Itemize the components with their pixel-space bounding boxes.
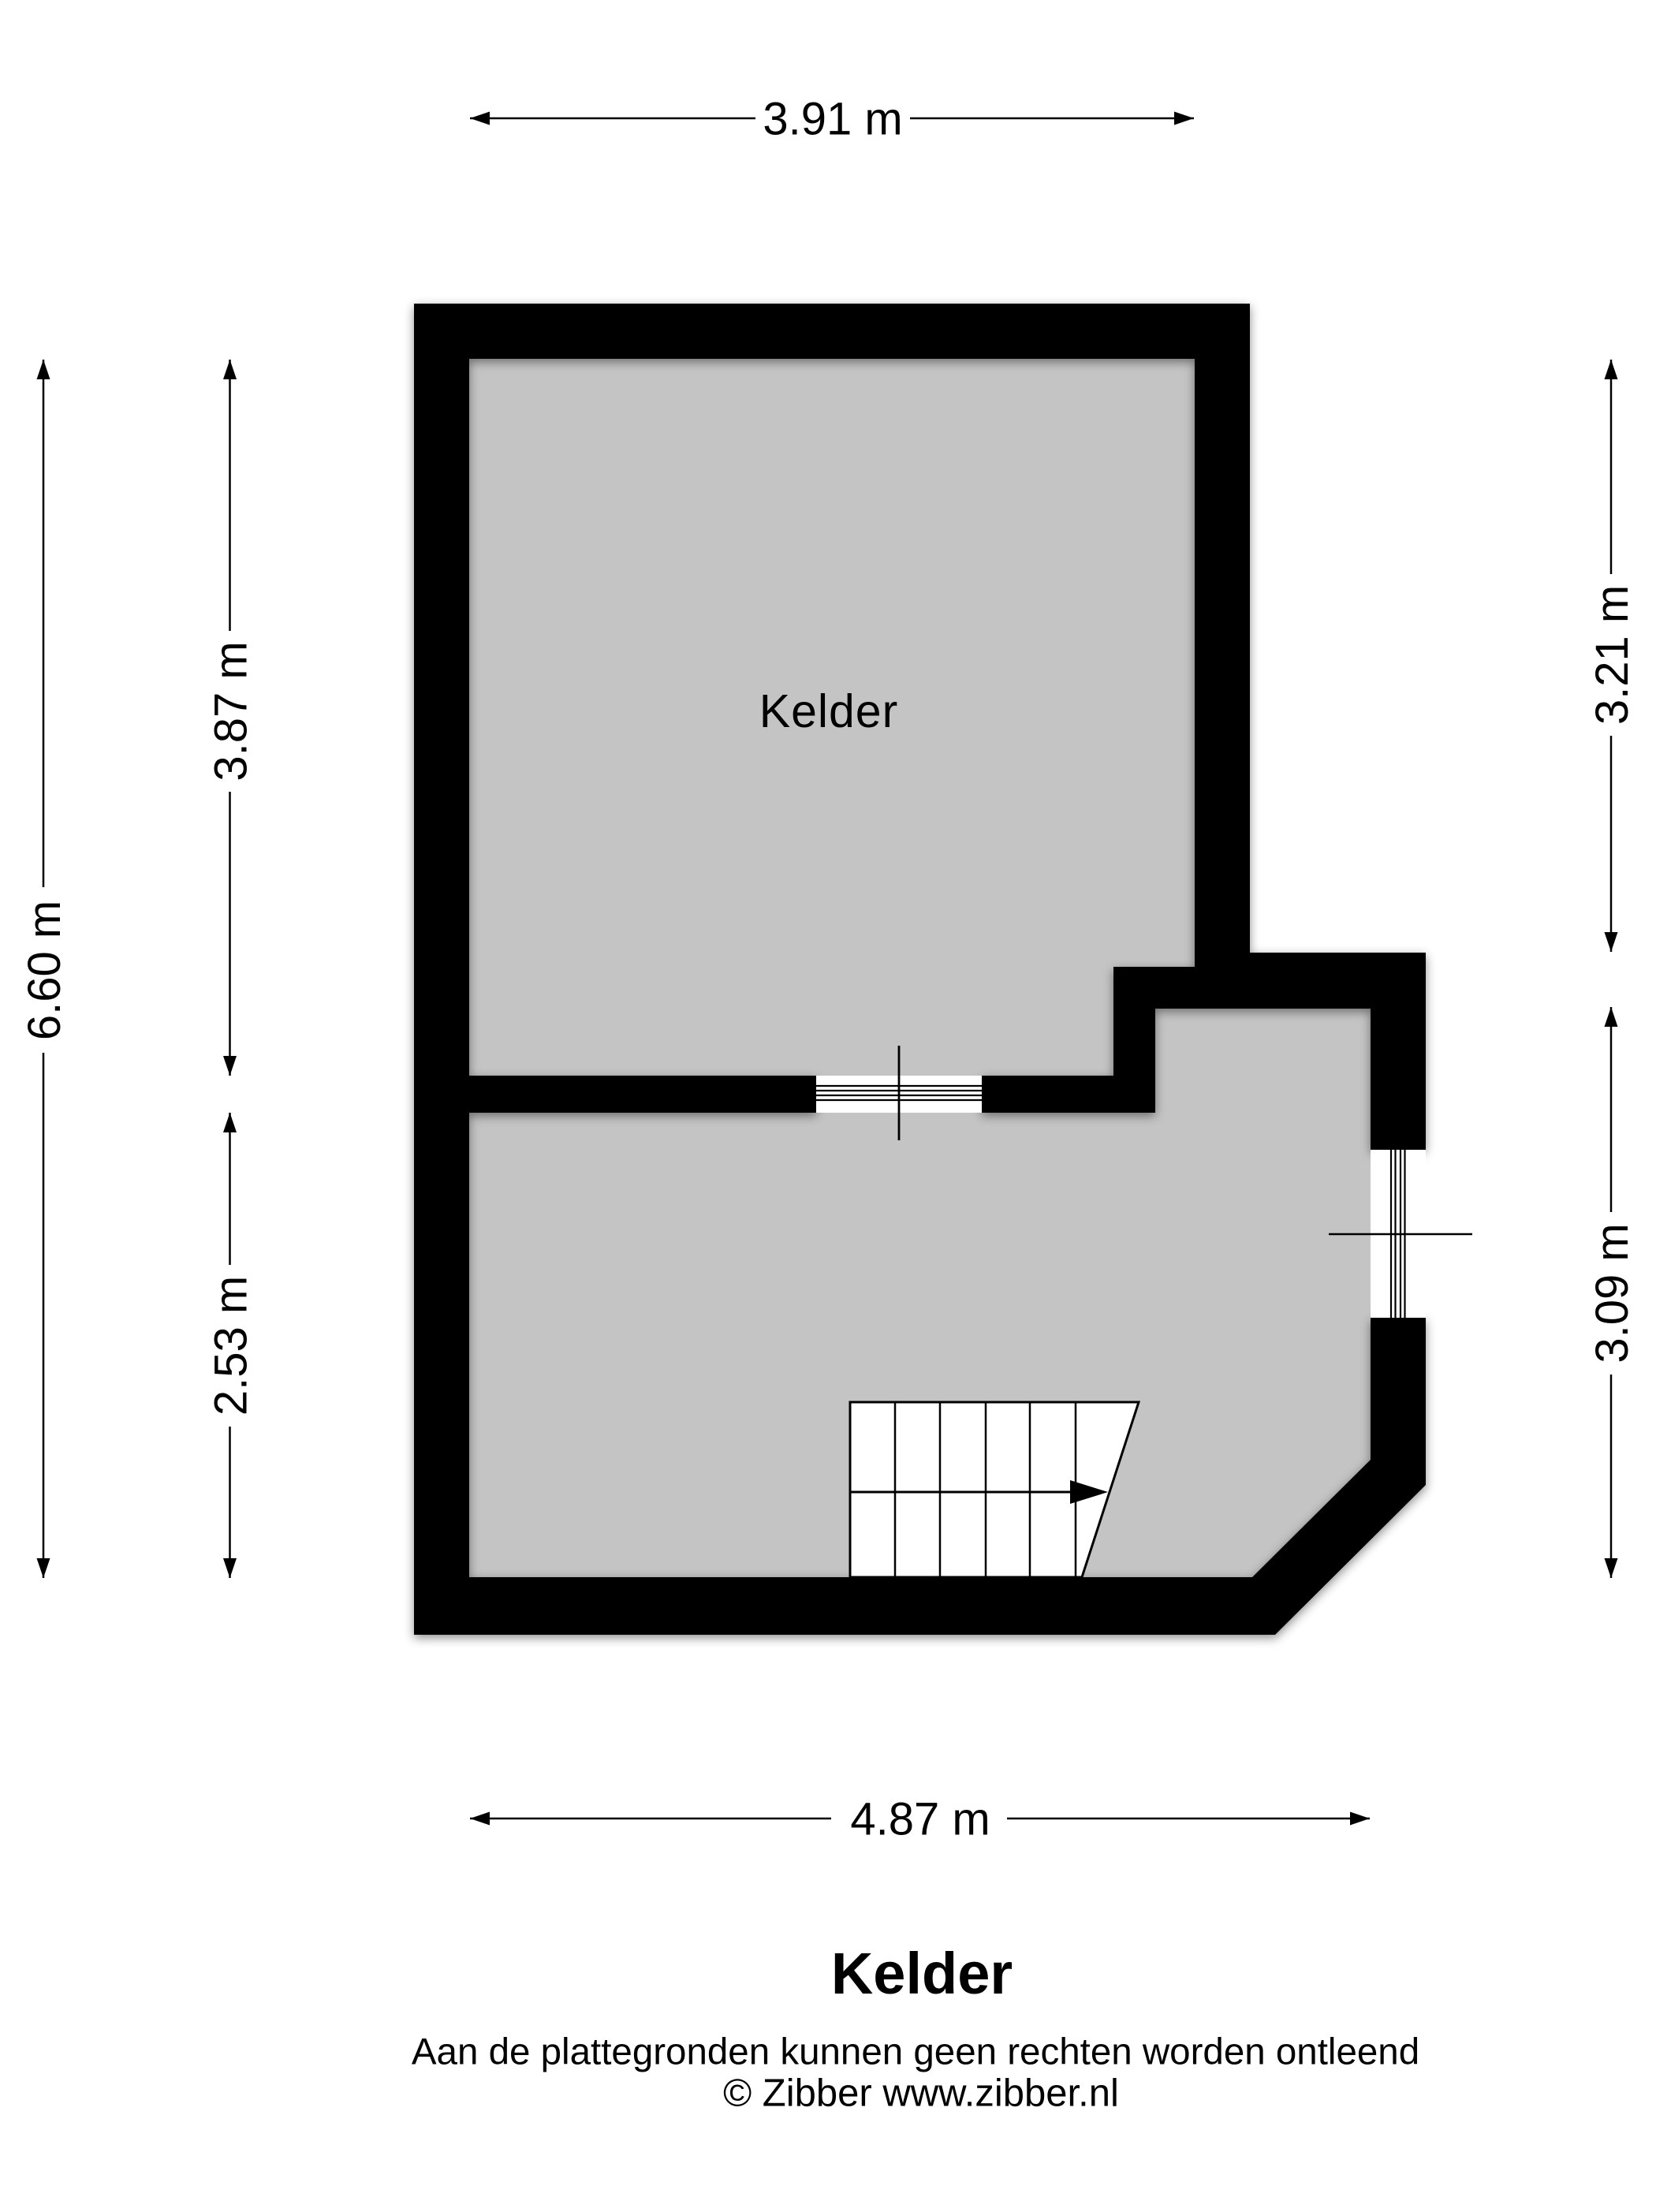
svg-text:3.87 m: 3.87 m xyxy=(206,641,257,781)
svg-text:2.53 m: 2.53 m xyxy=(206,1276,257,1416)
svg-text:3.21 m: 3.21 m xyxy=(1587,585,1638,725)
svg-text:3.91 m: 3.91 m xyxy=(763,94,902,145)
svg-text:© Zibber www.zibber.nl: © Zibber www.zibber.nl xyxy=(723,2072,1119,2115)
svg-text:3.09 m: 3.09 m xyxy=(1587,1223,1638,1363)
svg-text:Kelder: Kelder xyxy=(831,1941,1013,2006)
svg-text:6.60 m: 6.60 m xyxy=(19,901,70,1040)
svg-text:Kelder: Kelder xyxy=(759,685,899,737)
svg-text:4.87 m: 4.87 m xyxy=(850,1794,990,1845)
svg-text:Aan de plattegronden kunnen ge: Aan de plattegronden kunnen geen rechten… xyxy=(412,2031,1419,2073)
